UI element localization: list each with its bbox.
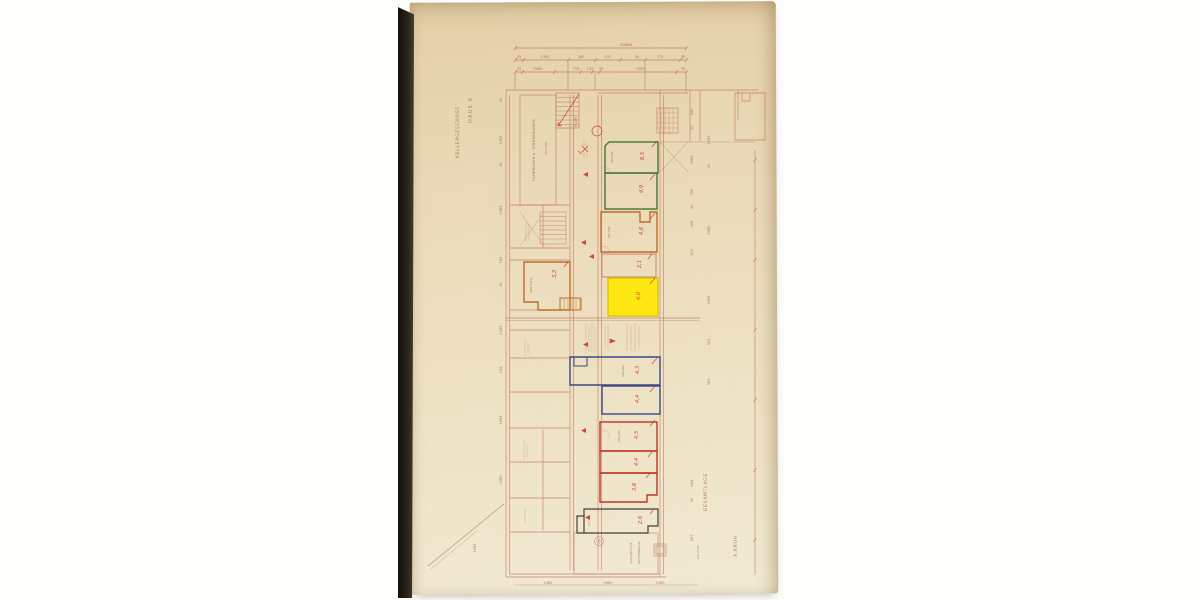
dim: 30 xyxy=(690,125,694,130)
label-trockenraum: TROCKENRAUM xyxy=(637,541,641,566)
title-haus: HAUS 9 xyxy=(468,97,474,123)
dim: 3985 xyxy=(603,581,612,585)
label-keller-blue1: KELLER xyxy=(621,365,625,376)
dim: 365 xyxy=(578,55,585,59)
dim: 3085 xyxy=(499,475,503,484)
dim: 35 xyxy=(599,67,604,71)
mark-red2: 4,4 xyxy=(634,457,640,466)
dim: 343 xyxy=(690,109,694,116)
label-bv2000: BV 2000 xyxy=(544,142,548,155)
title-dg: DG 2305 xyxy=(696,545,700,558)
dim: 2345 xyxy=(499,325,503,334)
label-bike-room: FAHRRÄDER u. KINDERWAGEN xyxy=(531,119,536,181)
mark-red1: 4,5 xyxy=(634,430,640,439)
dim: 305 xyxy=(707,339,711,346)
dim: 2985 xyxy=(707,295,711,304)
title-gesamtlage: GESAMTLAGE xyxy=(703,473,709,511)
dim: 1985 xyxy=(499,415,503,424)
dim: 30 xyxy=(690,497,694,502)
dim: 1065 xyxy=(707,135,711,144)
label-keller-orange: KELLER xyxy=(607,226,611,237)
dim: 1485 xyxy=(543,581,552,585)
dim: 387 xyxy=(690,535,694,542)
dim: 30 xyxy=(635,55,640,59)
label-keller-red1: KELLER xyxy=(617,430,621,441)
dim: 1395 xyxy=(499,135,503,144)
dim: 35 xyxy=(681,55,686,59)
dim: 30 xyxy=(690,204,694,209)
title-geschoss: KELLERGESCHOSS xyxy=(455,106,461,158)
dim: 765 xyxy=(499,257,503,264)
dim: 3585 xyxy=(690,155,694,164)
mark-blue2: 4,4 xyxy=(635,394,641,403)
dim: 685 xyxy=(690,480,694,487)
floorplan-drawing: 8,5 4,9 4,6 2,1 4,0 3,2 4,3 4,4 4,5 4,4 … xyxy=(398,0,788,600)
dim: 3085 xyxy=(533,67,542,71)
title-architect: A.KROH xyxy=(733,535,739,557)
dim: 30 xyxy=(499,162,503,167)
dim: 437 xyxy=(605,55,612,59)
dim: 3985 xyxy=(707,225,711,234)
mark-green1: 8,5 xyxy=(640,151,646,160)
mark-abstell: 3,2 xyxy=(552,269,558,278)
label-dark-area: 10,5 m² xyxy=(587,514,591,527)
label-waschkueche: WASCHKÜCHE xyxy=(628,542,633,564)
dim: 245 xyxy=(499,367,503,374)
mark-blue1: 4,3 xyxy=(635,365,641,374)
dim: 30 xyxy=(499,282,503,287)
dim: 35 xyxy=(517,67,522,71)
dim: 365 xyxy=(707,379,711,386)
dim: 30 xyxy=(707,163,711,168)
mark-dark: 2,6 xyxy=(638,515,644,524)
dim: 765 xyxy=(690,189,694,196)
dim: 2985 xyxy=(499,205,503,214)
mark-red3: 3,6 xyxy=(632,482,638,491)
scanned-floorplan-page: 8,5 4,9 4,6 2,1 4,0 3,2 4,3 4,4 4,5 4,4 … xyxy=(0,0,1200,600)
label-abstellraum: ABSTELLR. xyxy=(529,277,533,293)
dim: 2985 xyxy=(655,581,664,585)
dim: 5085 xyxy=(636,67,645,71)
label-flur: FLUR xyxy=(574,117,578,127)
dim-total: 10485 xyxy=(620,42,633,47)
mark-green2: 4,9 xyxy=(639,184,645,193)
dim: 35 xyxy=(517,55,522,59)
dim: 870 xyxy=(690,248,694,256)
label-keller-green1: KELLER xyxy=(610,151,614,162)
dim: 35 xyxy=(499,98,503,103)
dim: 715 xyxy=(573,67,580,71)
dim: 305 xyxy=(690,221,694,228)
dim: 35 xyxy=(681,67,686,71)
hatched-box-orange xyxy=(560,298,581,310)
dim: 135 xyxy=(587,67,594,71)
dim: 775 xyxy=(657,55,664,59)
dim: 1395 xyxy=(540,55,549,59)
mark-orange: 4,6 xyxy=(639,226,645,235)
mark-pink: 2,1 xyxy=(637,260,643,269)
mark-yellow: 4,0 xyxy=(636,291,642,300)
dim-diagonal: 1985 xyxy=(473,543,477,552)
